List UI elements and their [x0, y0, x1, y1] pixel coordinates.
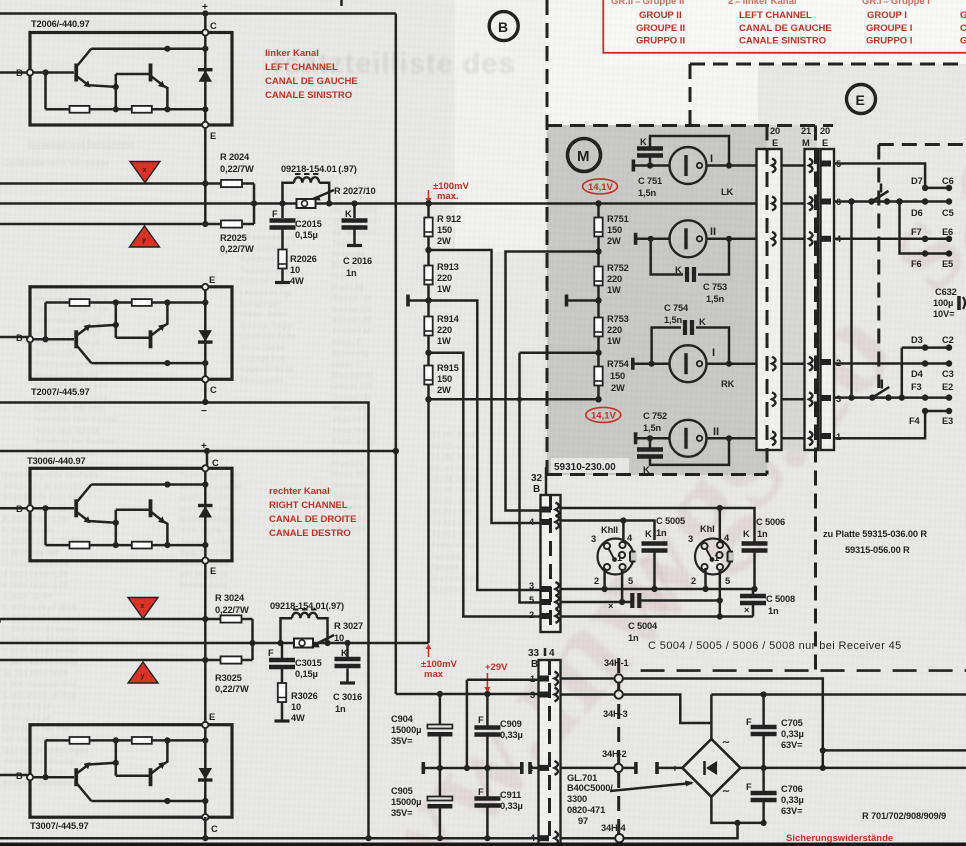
svg-text:C909: C909 — [500, 719, 522, 729]
svg-text:max.: max. — [437, 191, 459, 202]
svg-text:R 2024: R 2024 — [220, 152, 250, 162]
svg-text:10V=: 10V= — [933, 309, 955, 319]
svg-text:1W: 1W — [437, 336, 451, 346]
svg-text:C: C — [212, 458, 219, 468]
svg-text:32: 32 — [531, 473, 543, 484]
svg-text:2W: 2W — [607, 236, 621, 246]
svg-text:0,15µ: 0,15µ — [295, 230, 318, 240]
svg-text:R3025: R3025 — [215, 673, 242, 683]
svg-text:E2: E2 — [942, 382, 953, 392]
svg-text:+: + — [672, 764, 678, 775]
svg-text:RK: RK — [721, 379, 735, 389]
svg-text:C911: C911 — [500, 790, 521, 800]
svg-text:R751: R751 — [607, 214, 629, 224]
svg-text:D7: D7 — [911, 176, 923, 186]
svg-text:0,33µ: 0,33µ — [500, 730, 523, 740]
svg-text:E: E — [210, 131, 216, 141]
svg-text:4: 4 — [724, 533, 730, 543]
svg-text:C 5008: C 5008 — [766, 594, 795, 604]
svg-text:C 751: C 751 — [638, 176, 662, 186]
svg-text:34H-1: 34H-1 — [604, 658, 629, 668]
svg-text:C3: C3 — [942, 369, 954, 379]
svg-text:∼: ∼ — [722, 737, 730, 747]
svg-text:CANAL DE GAUCHE: CANAL DE GAUCHE — [739, 23, 832, 34]
svg-text:35V=: 35V= — [391, 736, 413, 746]
svg-text:220: 220 — [607, 325, 622, 335]
svg-text:T3007/-445.97: T3007/-445.97 — [30, 821, 89, 831]
svg-text:0,22/7W: 0,22/7W — [215, 684, 249, 694]
svg-text:150: 150 — [607, 225, 622, 235]
svg-text:C: C — [211, 824, 218, 834]
svg-text:4: 4 — [549, 648, 555, 659]
svg-text:1n: 1n — [757, 529, 768, 539]
svg-text:G: G — [960, 10, 966, 21]
svg-text:C 754: C 754 — [664, 303, 689, 313]
svg-text:C705: C705 — [781, 718, 803, 728]
svg-text:1,5n: 1,5n — [643, 423, 661, 433]
svg-text:II: II — [710, 226, 716, 238]
svg-text:B40C5000/: B40C5000/ — [567, 783, 613, 793]
svg-text:1n: 1n — [656, 528, 667, 538]
svg-text:10: 10 — [334, 633, 344, 643]
svg-text:GR.II = Gruppe II: GR.II = Gruppe II — [611, 0, 684, 7]
svg-text:D3: D3 — [911, 335, 923, 345]
svg-text:LEFT CHANNEL: LEFT CHANNEL — [265, 62, 338, 73]
svg-text:E: E — [822, 138, 828, 148]
svg-text:0820-471: 0820-471 — [567, 805, 605, 815]
svg-text:C 5006: C 5006 — [756, 517, 785, 527]
svg-text:×: × — [744, 605, 750, 615]
svg-text:100µ: 100µ — [933, 298, 953, 308]
svg-text:4W: 4W — [291, 713, 305, 723]
svg-text:220: 220 — [437, 273, 452, 283]
svg-text:35V=: 35V= — [391, 808, 413, 818]
svg-text:0,15µ: 0,15µ — [295, 669, 318, 679]
svg-text:14,1V: 14,1V — [591, 411, 616, 422]
svg-text:−: − — [201, 406, 207, 417]
svg-text:34H-3: 34H-3 — [603, 709, 628, 719]
svg-text:LEFT CHANNEL: LEFT CHANNEL — [739, 10, 812, 21]
svg-text:T2007/-445.97: T2007/-445.97 — [31, 387, 90, 397]
svg-text:1n: 1n — [768, 606, 779, 616]
svg-text:F7: F7 — [911, 227, 922, 237]
svg-text:C 2016: C 2016 — [343, 256, 372, 266]
svg-text:zu Platte 59315-036.00 R: zu Platte 59315-036.00 R — [823, 529, 927, 539]
svg-text:1,5n: 1,5n — [664, 315, 682, 325]
svg-text:G: G — [960, 36, 966, 47]
svg-text:2W: 2W — [437, 385, 451, 395]
svg-text:E3: E3 — [942, 416, 953, 426]
svg-text:R 2027/10: R 2027/10 — [334, 186, 376, 196]
svg-text:GROUP I: GROUP I — [867, 10, 907, 21]
svg-text:K: K — [675, 265, 682, 275]
svg-text:1,5n: 1,5n — [706, 294, 724, 304]
svg-text:CANALE SINISTRO: CANALE SINISTRO — [739, 36, 826, 47]
svg-text:C 5004: C 5004 — [628, 621, 658, 631]
svg-text:I: I — [710, 153, 713, 165]
svg-text:34H-2: 34H-2 — [602, 749, 627, 759]
svg-text:C: C — [210, 385, 217, 395]
svg-text:220: 220 — [437, 325, 452, 335]
svg-text:2 = linker Kanal: 2 = linker Kanal — [728, 0, 797, 7]
svg-text:2W: 2W — [437, 236, 451, 246]
svg-text:1n: 1n — [628, 633, 639, 643]
svg-text:R 3027: R 3027 — [334, 621, 363, 631]
svg-text:20: 20 — [770, 126, 780, 136]
svg-text:R754: R754 — [607, 359, 630, 369]
svg-text:09218-154.01 (.97): 09218-154.01 (.97) — [281, 164, 357, 174]
svg-text:2: 2 — [691, 576, 696, 586]
svg-text:C632: C632 — [935, 287, 957, 297]
svg-text:+29V: +29V — [485, 662, 508, 673]
svg-text:2: 2 — [529, 610, 534, 620]
svg-text:15000µ: 15000µ — [391, 725, 421, 735]
svg-text:15000µ: 15000µ — [391, 797, 421, 807]
svg-text:B: B — [498, 19, 508, 35]
svg-text:F: F — [746, 717, 752, 727]
svg-text:220: 220 — [607, 274, 622, 284]
svg-text:CANAL DE GAUCHE: CANAL DE GAUCHE — [265, 76, 358, 87]
svg-text:II: II — [713, 426, 719, 438]
svg-text:R 701/702/908/909/9: R 701/702/908/909/9 — [862, 811, 946, 821]
svg-text:R 912: R 912 — [437, 214, 461, 224]
svg-text:C: C — [210, 21, 217, 31]
svg-text:x: x — [141, 603, 145, 610]
svg-text:GROUPE II: GROUPE II — [636, 23, 685, 34]
svg-text:I: I — [712, 347, 715, 359]
svg-text:10: 10 — [291, 702, 301, 712]
svg-text:21: 21 — [801, 126, 811, 136]
svg-text:R2026: R2026 — [290, 254, 317, 264]
svg-text:F3: F3 — [911, 382, 922, 392]
svg-text:C3015: C3015 — [295, 658, 322, 668]
svg-text:0,33µ: 0,33µ — [781, 795, 804, 805]
svg-text:R915: R915 — [437, 363, 459, 373]
svg-text:R3026: R3026 — [291, 691, 318, 701]
svg-text:LK: LK — [721, 187, 734, 197]
svg-text:CANAL DE DROITE: CANAL DE DROITE — [269, 514, 356, 525]
svg-text:B: B — [533, 484, 540, 495]
svg-text:3: 3 — [591, 534, 596, 544]
svg-text:M: M — [802, 138, 810, 148]
svg-text:B: B — [531, 659, 538, 670]
svg-text:E: E — [209, 275, 215, 285]
svg-text:150: 150 — [437, 374, 452, 384]
svg-text:∼: ∼ — [722, 786, 730, 796]
svg-text:C 752: C 752 — [643, 411, 667, 421]
svg-text:E: E — [210, 566, 216, 576]
svg-text:97: 97 — [578, 816, 588, 826]
svg-text:4: 4 — [627, 533, 633, 543]
svg-text:1n: 1n — [335, 704, 346, 714]
svg-text:C 5005: C 5005 — [656, 516, 685, 526]
svg-text:10: 10 — [290, 265, 300, 275]
svg-text:3: 3 — [688, 534, 693, 544]
svg-text:CANALE DESTRO: CANALE DESTRO — [269, 528, 351, 539]
svg-text:59310-230.00: 59310-230.00 — [554, 462, 616, 473]
svg-text:1,5n: 1,5n — [638, 188, 656, 198]
svg-text:Sicherungswiderstände: Sicherungswiderstände — [786, 833, 893, 844]
svg-text:R753: R753 — [607, 314, 629, 324]
svg-text:K: K — [345, 209, 352, 219]
svg-text:2W: 2W — [611, 383, 625, 393]
svg-text:KhII: KhII — [601, 525, 618, 535]
svg-text:T3006/-440.97: T3006/-440.97 — [27, 456, 86, 466]
svg-text:D6: D6 — [911, 208, 923, 218]
svg-text:RIGHT CHANNEL: RIGHT CHANNEL — [269, 500, 348, 511]
svg-text:C6: C6 — [942, 176, 954, 186]
svg-text:y: y — [141, 673, 145, 680]
svg-text:C5: C5 — [942, 208, 954, 218]
svg-text:y: y — [142, 237, 146, 244]
svg-text:K: K — [640, 137, 647, 147]
svg-text:C 753: C 753 — [703, 282, 727, 292]
svg-text:C706: C706 — [781, 784, 803, 794]
svg-text:5: 5 — [529, 595, 534, 605]
svg-text:E: E — [209, 712, 215, 722]
svg-text:0,22/7W: 0,22/7W — [215, 605, 249, 615]
svg-text:0,22/7W: 0,22/7W — [220, 164, 254, 174]
svg-text:3: 3 — [836, 394, 841, 404]
svg-text:150: 150 — [610, 371, 625, 381]
svg-text:R752: R752 — [607, 263, 629, 273]
svg-text:20: 20 — [820, 126, 830, 136]
svg-text:KhI: KhI — [700, 524, 715, 534]
svg-text:R913: R913 — [437, 262, 459, 272]
svg-text:0,33µ: 0,33µ — [781, 729, 804, 739]
svg-text:0,33µ: 0,33µ — [500, 801, 523, 811]
svg-text:34H-4: 34H-4 — [601, 823, 627, 833]
svg-text:GL.701: GL.701 — [567, 773, 597, 783]
svg-text:1: 1 — [836, 432, 841, 442]
svg-text:GRUPPO II: GRUPPO II — [636, 36, 685, 47]
svg-text:×: × — [608, 601, 614, 611]
svg-text:C 3016: C 3016 — [333, 692, 362, 702]
svg-text:C 5004 / 5005 / 5006 / 5008 n: C 5004 / 5005 / 5006 / 5008 nur bei Rece… — [648, 640, 902, 652]
svg-text:x: x — [143, 167, 147, 174]
svg-text:1: 1 — [617, 553, 622, 563]
svg-text:K: K — [699, 317, 706, 327]
svg-text:F: F — [478, 715, 484, 725]
svg-text:max: max — [424, 669, 444, 680]
svg-text:F: F — [268, 648, 274, 658]
svg-text:5: 5 — [725, 576, 730, 586]
svg-text:150: 150 — [437, 225, 452, 235]
svg-text:59315-056.00 R: 59315-056.00 R — [845, 545, 910, 555]
svg-text:3: 3 — [529, 581, 534, 591]
svg-text:63V=: 63V= — [781, 806, 803, 816]
svg-text:E5: E5 — [942, 259, 953, 269]
svg-text:linker Kanal: linker Kanal — [265, 48, 319, 59]
svg-text:63V=: 63V= — [781, 740, 803, 750]
svg-text:C904: C904 — [391, 714, 414, 724]
svg-text:GROUP II: GROUP II — [639, 10, 682, 21]
svg-text:E: E — [772, 138, 778, 148]
svg-text:3300: 3300 — [567, 794, 587, 804]
svg-text:C2: C2 — [942, 335, 954, 345]
svg-text:1: 1 — [714, 553, 719, 563]
svg-text:GR.I = Gruppe I: GR.I = Gruppe I — [862, 0, 930, 7]
svg-text:1W: 1W — [607, 285, 621, 295]
svg-text:0,22/7W: 0,22/7W — [220, 244, 254, 254]
svg-text:C905: C905 — [391, 786, 413, 796]
svg-text:F6: F6 — [911, 259, 922, 269]
svg-text:33: 33 — [528, 648, 540, 659]
svg-text:F: F — [746, 782, 752, 792]
svg-text:C: C — [960, 23, 966, 34]
svg-text:GRUPPO I: GRUPPO I — [866, 36, 912, 47]
svg-text:0: 0 — [0, 616, 1, 626]
svg-text:4W: 4W — [290, 276, 304, 286]
svg-text:K: K — [643, 465, 650, 475]
svg-text:2: 2 — [594, 576, 599, 586]
svg-text:1W: 1W — [607, 336, 621, 346]
svg-text:rechter Kanal: rechter Kanal — [269, 486, 330, 497]
svg-text:F: F — [478, 787, 484, 797]
svg-text:5: 5 — [628, 576, 633, 586]
svg-text:R 3024: R 3024 — [215, 593, 245, 603]
svg-text:C2015: C2015 — [295, 219, 322, 229]
svg-text:+: + — [201, 441, 207, 452]
svg-text:14,1V: 14,1V — [588, 182, 613, 193]
svg-text:D4: D4 — [911, 369, 924, 379]
svg-text:K: K — [645, 529, 652, 539]
svg-text:K: K — [743, 529, 750, 539]
svg-text:1n: 1n — [346, 268, 357, 278]
svg-text:T2006/-440.97: T2006/-440.97 — [31, 19, 90, 29]
svg-text:E: E — [856, 92, 865, 108]
svg-text:F4: F4 — [909, 416, 921, 426]
svg-text:M: M — [577, 148, 590, 165]
svg-text:1W: 1W — [437, 284, 451, 294]
svg-text:R2025: R2025 — [220, 233, 247, 243]
svg-text:GROUPE I: GROUPE I — [866, 23, 912, 34]
svg-text:F: F — [272, 209, 278, 219]
svg-text:E6: E6 — [942, 227, 953, 237]
svg-text:R914: R914 — [437, 314, 460, 324]
svg-text:CANALE SINISTRO: CANALE SINISTRO — [265, 90, 352, 101]
